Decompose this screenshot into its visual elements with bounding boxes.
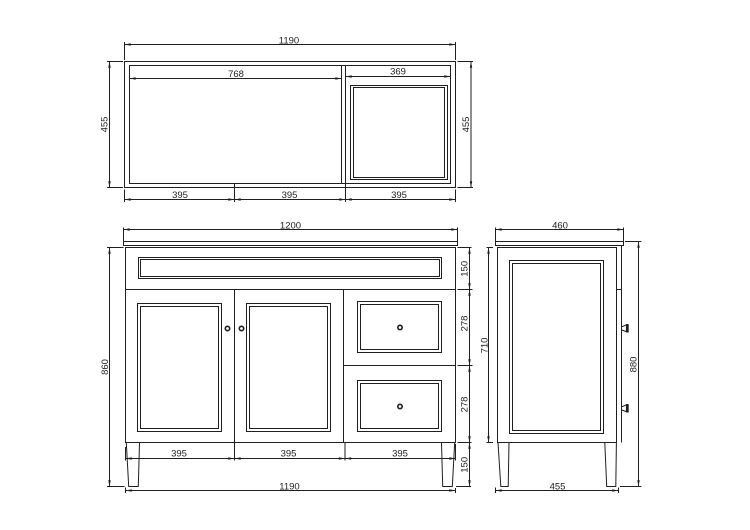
svg-text:1190: 1190: [279, 35, 299, 46]
svg-text:395: 395: [172, 190, 188, 201]
svg-text:369: 369: [390, 67, 406, 78]
svg-text:395: 395: [391, 190, 407, 201]
svg-text:395: 395: [392, 449, 408, 460]
svg-text:150: 150: [460, 457, 471, 473]
svg-text:278: 278: [460, 316, 471, 332]
svg-text:455: 455: [461, 117, 472, 133]
svg-text:150: 150: [460, 261, 471, 277]
svg-text:395: 395: [282, 190, 298, 201]
svg-text:1190: 1190: [279, 481, 299, 492]
svg-text:455: 455: [100, 117, 111, 133]
svg-text:278: 278: [460, 397, 471, 413]
svg-text:1200: 1200: [280, 221, 301, 232]
svg-text:880: 880: [628, 357, 639, 373]
svg-text:860: 860: [100, 359, 111, 375]
svg-text:455: 455: [550, 481, 566, 492]
svg-text:710: 710: [479, 338, 490, 354]
svg-text:768: 768: [228, 69, 244, 80]
svg-text:395: 395: [171, 449, 187, 460]
svg-text:460: 460: [552, 221, 568, 232]
svg-text:395: 395: [281, 449, 297, 460]
